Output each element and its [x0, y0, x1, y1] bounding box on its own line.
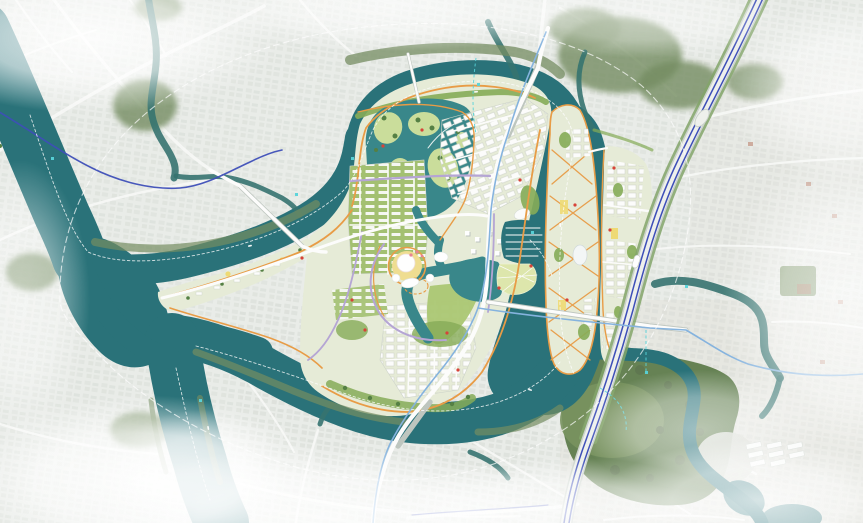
masterplan-map[interactable]	[0, 0, 863, 523]
fog-layer	[0, 0, 863, 523]
map-canvas[interactable]	[0, 0, 863, 523]
